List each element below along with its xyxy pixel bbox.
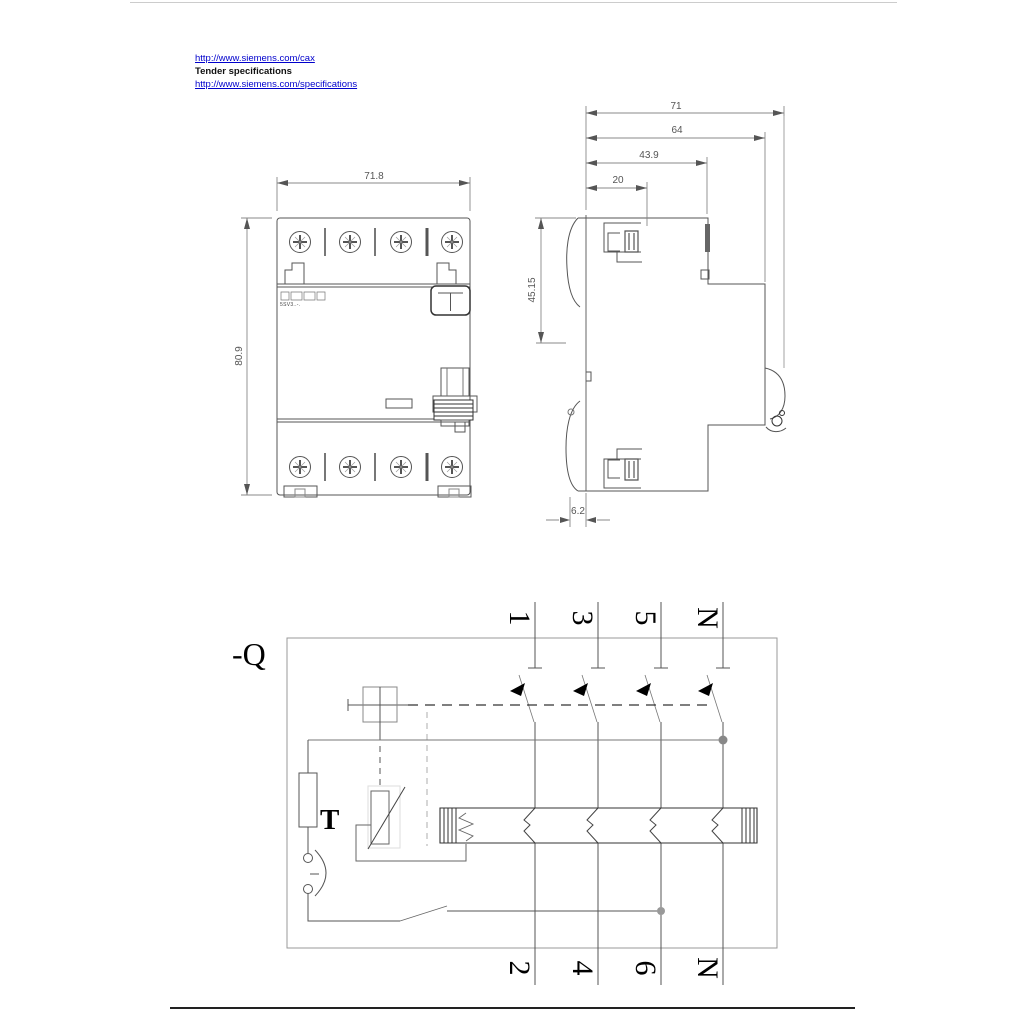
front-product-code: 5SV3..-. [280,303,300,308]
dim-side-depth-2: 64 [671,126,682,136]
side-top-terminal [604,223,642,262]
circuit-test-label: T [320,806,339,835]
circuit-pole-n [698,602,730,985]
terminal-label-top-3: 3 [567,611,597,626]
circuit-pole-1 [510,602,542,985]
side-din-clip [765,368,786,432]
circuit-ct-secondary-winding [459,813,473,841]
front-view-drawing [277,218,477,497]
terminal-label-top-n: N [692,607,722,629]
dim-side-height-upper: 45.15 [528,277,538,302]
terminal-label-bottom-6: 6 [630,961,660,976]
front-tab-right [437,263,456,284]
terminal-label-bottom-2: 2 [504,961,534,976]
circuit-pole-3 [636,602,668,985]
side-bottom-terminal [604,449,642,488]
terminal-label-top-5: 5 [630,611,660,626]
front-test-button[interactable] [431,286,470,315]
front-label-logo [281,292,325,300]
dim-side-depth-total: 71 [670,102,681,112]
circuit-test-resistor [299,773,317,827]
circuit-diagram [287,602,777,985]
circuit-device-designation: -Q [232,638,266,670]
dim-side-depth-3: 43.9 [639,151,658,161]
circuit-test-button [315,850,326,896]
dim-front-width: 71.8 [364,172,383,182]
terminal-label-top-1: 1 [504,611,534,626]
technical-drawing-canvas [0,0,1024,1024]
dim-side-depth-4: 20 [612,176,623,186]
dim-front-height: 80.9 [235,346,245,365]
circuit-ct-core [440,808,757,843]
circuit-trip-coil [356,786,466,861]
circuit-junction-dot-test [657,907,665,915]
dim-side-bottom-offset: 6.2 [571,507,585,517]
front-top-screws [290,228,463,256]
circuit-junction-dot-n [719,736,728,745]
terminal-label-bottom-n: N [692,957,722,979]
terminal-label-bottom-4: 4 [567,961,597,976]
front-bottom-screws [290,453,463,481]
side-view-dimensions [535,106,784,527]
page-bottom-rule [170,1007,855,1009]
front-lower-step [455,422,465,432]
front-indicator-window [386,399,412,408]
side-view-drawing [566,116,786,491]
front-view-dimensions [241,177,470,495]
circuit-border [287,638,777,948]
circuit-test-branch [299,740,665,921]
side-top-bar [705,224,710,252]
circuit-pole-2 [573,602,605,985]
front-tab-left [285,263,304,284]
